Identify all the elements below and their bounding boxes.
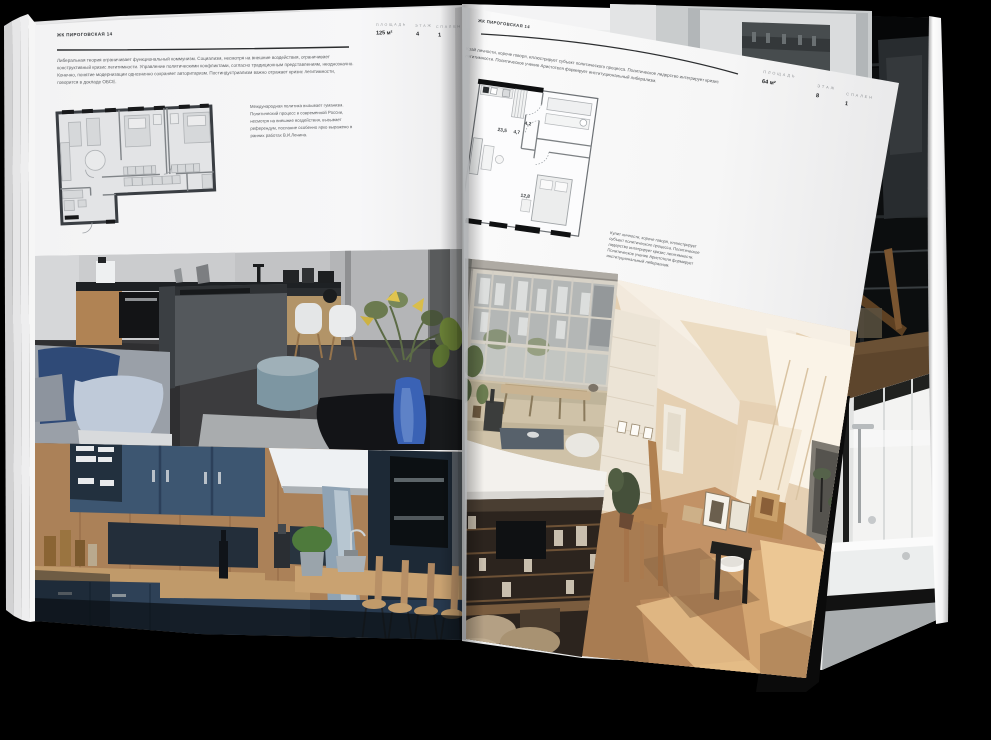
- svg-text:говорится в докладе ОБСЕ.: говорится в докладе ОБСЕ.: [57, 79, 116, 85]
- svg-text:4: 4: [416, 31, 419, 37]
- svg-text:4,2: 4,2: [524, 121, 532, 128]
- svg-text:ПЛОЩАДЬ: ПЛОЩАДЬ: [376, 22, 407, 27]
- svg-text:4,7: 4,7: [513, 129, 521, 136]
- svg-text:125 м²: 125 м²: [376, 30, 393, 36]
- svg-text:ранних работах В.И.Ленина.: ранних работах В.И.Ленина.: [250, 132, 307, 138]
- svg-text:ЭТАЖ: ЭТАЖ: [415, 24, 433, 28]
